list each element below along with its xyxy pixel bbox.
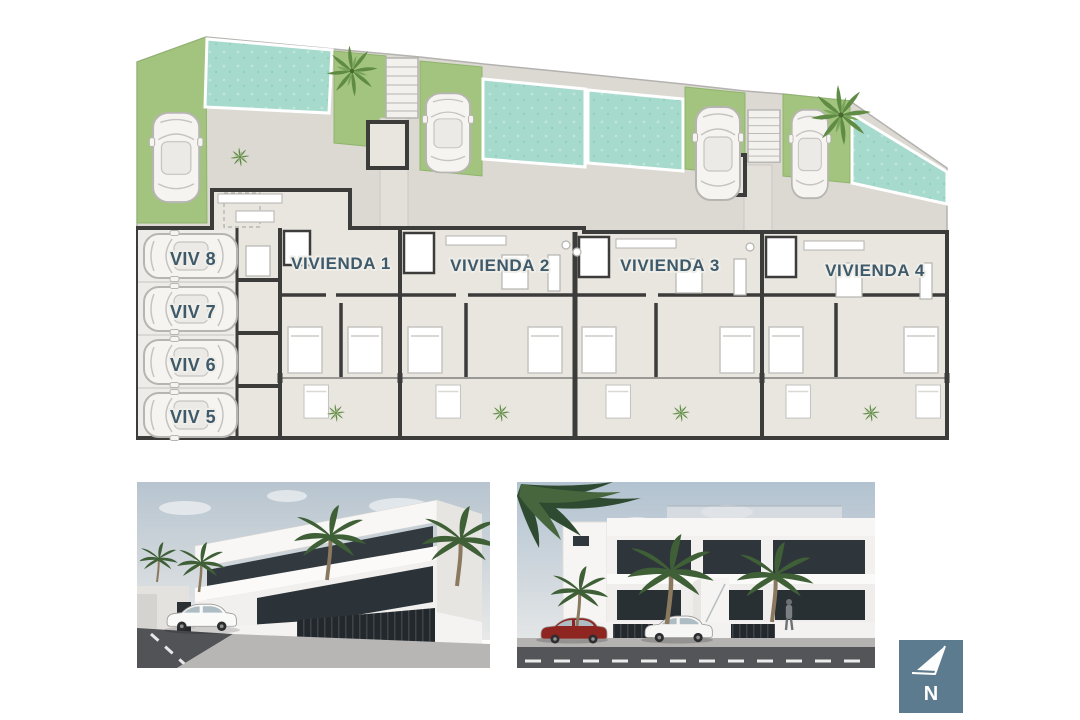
site-plan: VIVIENDA 1 VIVIENDA 2 VIVIENDA 3 VIVIEND… xyxy=(136,33,956,443)
parking-label-viv7: VIV 7 xyxy=(170,302,216,322)
north-indicator: N xyxy=(899,640,963,713)
parking-label-viv6: VIV 6 xyxy=(170,355,216,375)
car-driveway-3 xyxy=(693,107,744,200)
unit-label-vivienda-4: VIVIENDA 4 xyxy=(825,261,925,280)
exterior-render-photo-1 xyxy=(137,482,490,668)
building xyxy=(563,506,875,642)
north-letter: N xyxy=(924,684,938,704)
stairs-1 xyxy=(386,58,418,118)
exterior-render-photo-2 xyxy=(517,482,875,668)
unit-label-vivienda-3: VIVIENDA 3 xyxy=(620,256,720,275)
pool-3 xyxy=(588,90,683,171)
unit-label-vivienda-1: VIVIENDA 1 xyxy=(291,254,391,273)
pool-2 xyxy=(483,79,585,167)
unit-label-vivienda-2: VIVIENDA 2 xyxy=(450,256,550,275)
stairs-2 xyxy=(748,110,780,162)
car-garden-northwest xyxy=(149,113,203,202)
car-driveway-4 xyxy=(789,110,831,198)
walkway-2 xyxy=(744,165,772,234)
north-arrow-icon xyxy=(909,640,953,682)
parking-label-viv5: VIV 5 xyxy=(170,407,216,427)
road xyxy=(517,647,875,668)
parking-label-viv8: VIV 8 xyxy=(170,249,216,269)
brochure-page: VIVIENDA 1 VIVIENDA 2 VIVIENDA 3 VIVIEND… xyxy=(0,0,1080,720)
pool-1 xyxy=(205,39,332,113)
car-driveway-2 xyxy=(423,93,474,172)
entry-vestibule-1 xyxy=(368,122,407,168)
